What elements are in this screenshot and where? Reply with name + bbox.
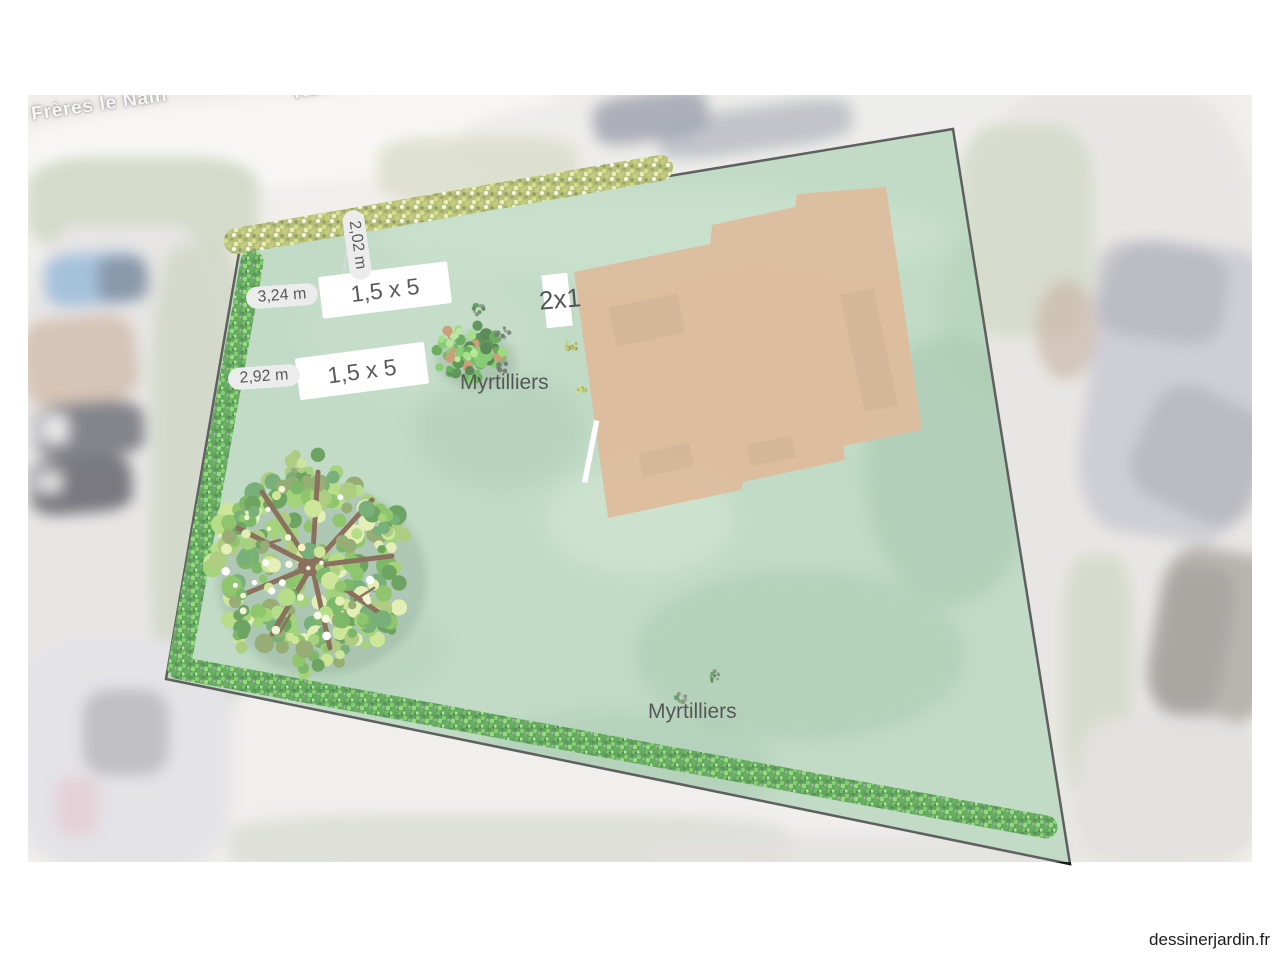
aerial-photo: Frères le Nain Rue des xyxy=(28,95,1252,862)
garden-plan-canvas: Frères le Nain Rue des xyxy=(0,0,1280,960)
site-watermark: dessinerjardin.fr xyxy=(1098,930,1270,950)
photo-white-wash xyxy=(28,95,1252,862)
